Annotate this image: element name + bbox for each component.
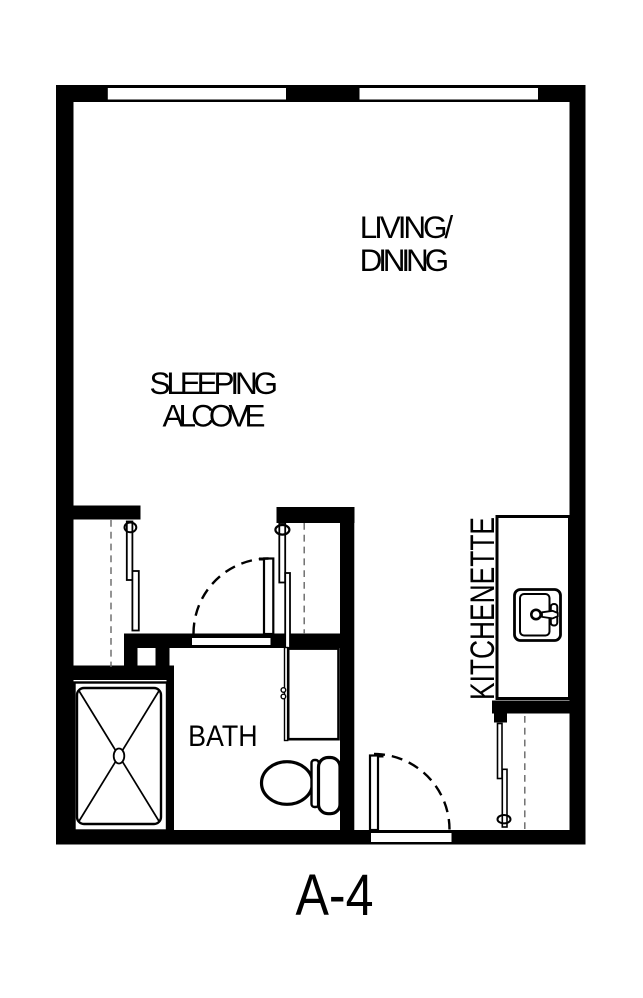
svg-text:KITCHENETTE: KITCHENETTE — [464, 517, 502, 700]
svg-text:BATH: BATH — [188, 720, 258, 753]
svg-text:SLEEPING: SLEEPING — [150, 365, 278, 401]
svg-text:LIVING/: LIVING/ — [360, 209, 454, 245]
svg-text:A-4: A-4 — [296, 863, 374, 928]
svg-text:DINING: DINING — [360, 242, 450, 278]
svg-text:ALCOVE: ALCOVE — [163, 398, 266, 434]
